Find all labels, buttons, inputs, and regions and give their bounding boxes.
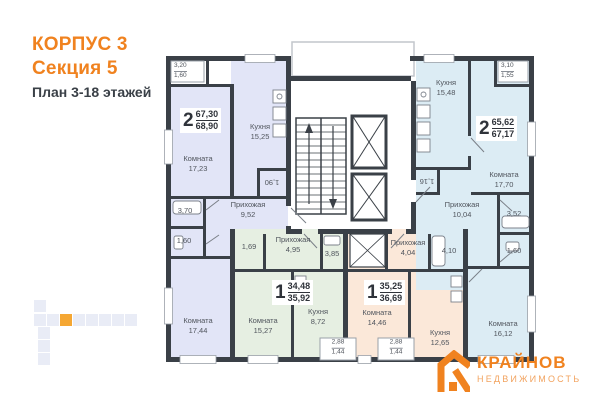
label-apt-left-pantry: 1,90 [265,177,280,187]
elevator-shafts [350,116,386,267]
label-apt-right-bath: 3,52 [507,209,522,219]
balcony-label-peach: 2,88 1,44 [390,339,403,358]
label-apt-right-room2: Комната16,12 [488,319,517,339]
label-apt-peach-hall: Прихожая4,04 [391,238,426,258]
building-title: КОРПУС 3 [32,34,128,56]
label-apt-right-wc: 1,60 [507,246,522,256]
label-apt-left-room1: Комната17,23 [183,154,212,174]
agency-logo: КРАЙНОВ НЕДВИЖИМОСТЬ [436,350,581,392]
entrance-canopy [292,42,414,76]
label-apt-peach-room: Комната14,46 [362,308,391,328]
key-map-current-section [60,314,72,326]
label-apt-green-hall: Прихожая4,95 [276,235,311,255]
logo-house-icon [436,350,470,392]
label-apt-right-room1: Комната17,70 [489,170,518,190]
balcony-label-right: 3,10 1,55 [501,62,514,81]
label-apt-right-hall: Прихожая10,04 [445,200,480,220]
label-apt-peach-kitchen: Кухня12,65 [430,328,450,348]
label-apt-left-wc: 1,60 [177,236,192,246]
label-apt-peach-bath: 4,10 [442,246,457,256]
label-apt-right-storage: 1,16 [420,176,435,186]
label-apt-green-kitchen: Кухня8,72 [308,307,328,327]
label-apt-green-bath: 3,85 [325,249,340,259]
balcony-label-left: 3,20 1,60 [174,62,187,81]
logo-tagline: НЕДВИЖИМОСТЬ [477,374,581,384]
apt-left-area-chip: 2 67,3068,90 [180,108,221,133]
floorplan-drawing [160,30,540,370]
apt-green-area-chip: 1 34,4835,92 [272,280,313,305]
label-apt-left-room2: Комната17,44 [183,316,212,336]
staircase [296,118,346,214]
label-apt-green-room: Комната15,27 [248,316,277,336]
apt-peach-area-chip: 1 35,2536,69 [364,280,405,305]
label-apt-right-kitchen: Кухня15,48 [436,78,456,98]
balcony-label-green: 2,88 1,44 [332,339,345,358]
section-title: Секция 5 [32,58,118,80]
label-apt-green-storage: 1,69 [242,242,257,252]
section-key-map [34,296,144,370]
apt-right-area-chip: 2 65,6267,17 [476,116,517,141]
floors-subtitle: План 3-18 этажей [32,84,151,100]
logo-company-name: КРАЙНОВ [477,354,581,372]
label-apt-left-hall: Прихожая9,52 [231,200,266,220]
label-apt-left-kitchen: Кухня15,25 [250,122,270,142]
floor-plan: 3,20 1,60 2 67,3068,90 Кухня15,25 Комнат… [160,30,540,370]
label-apt-left-bath: 3,70 [178,206,193,216]
